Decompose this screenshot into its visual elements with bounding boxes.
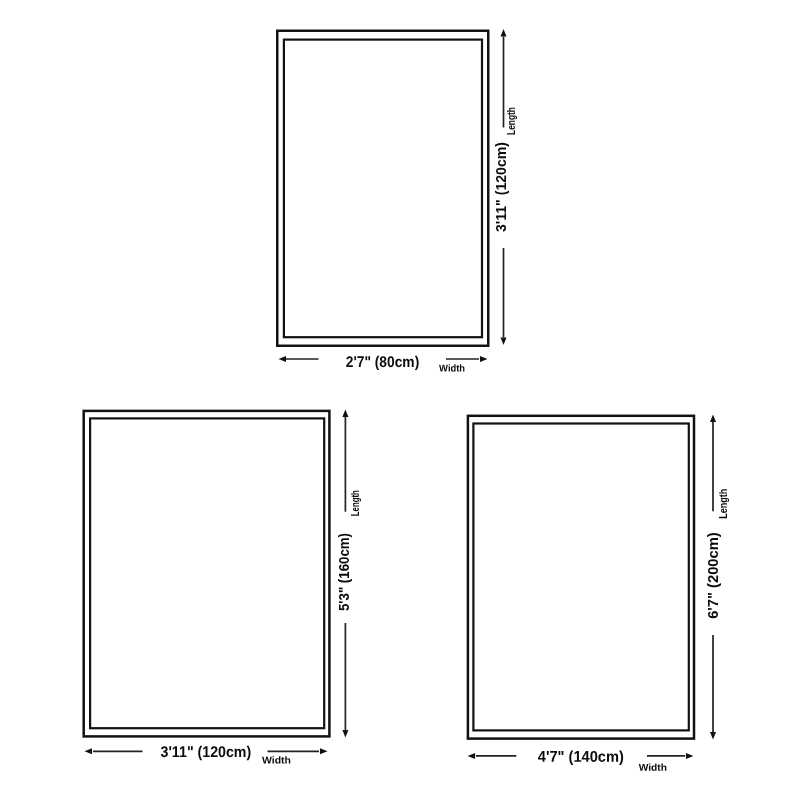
svg-text:2'7" (80cm): 2'7" (80cm) (346, 353, 420, 370)
svg-text:Width: Width (262, 754, 291, 765)
svg-text:Length: Length (350, 490, 361, 516)
svg-text:5'3" (160cm): 5'3" (160cm) (335, 533, 352, 611)
svg-text:4'7" (140cm): 4'7" (140cm) (538, 748, 624, 765)
svg-text:3'11" (120cm): 3'11" (120cm) (492, 142, 509, 232)
svg-text:Length: Length (506, 107, 517, 135)
svg-text:Width: Width (439, 363, 465, 374)
svg-text:3'11" (120cm): 3'11" (120cm) (161, 743, 252, 760)
svg-text:Length: Length (718, 489, 729, 519)
svg-text:Width: Width (639, 762, 667, 773)
svg-text:6'7" (200cm): 6'7" (200cm) (704, 532, 721, 619)
